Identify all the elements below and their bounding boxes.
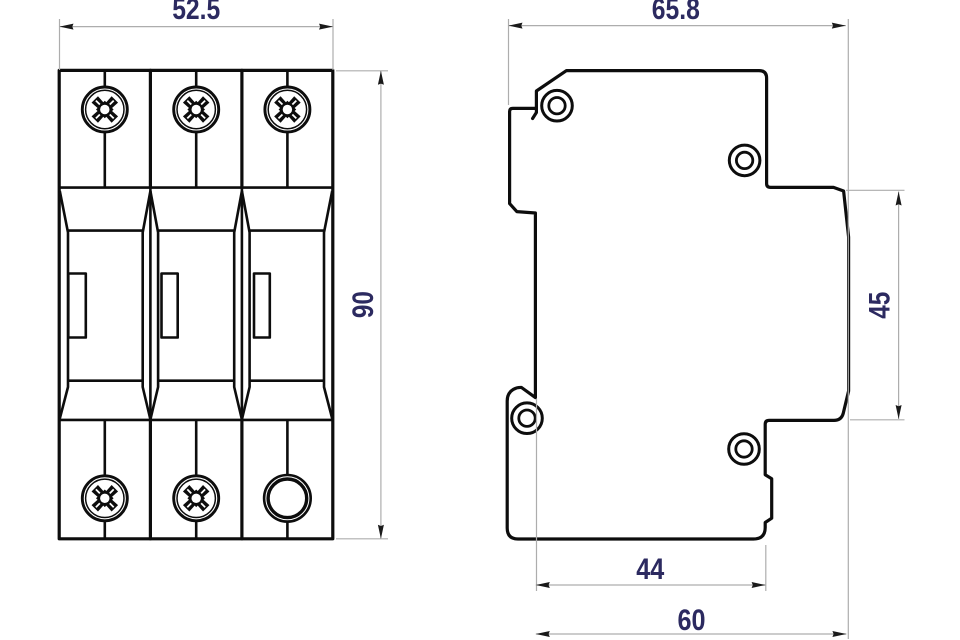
svg-text:45: 45 <box>864 292 897 319</box>
svg-text:65.8: 65.8 <box>652 0 700 26</box>
svg-text:60: 60 <box>678 604 706 637</box>
svg-text:90: 90 <box>347 291 380 318</box>
svg-text:44: 44 <box>636 553 664 586</box>
svg-text:52.5: 52.5 <box>172 0 220 26</box>
